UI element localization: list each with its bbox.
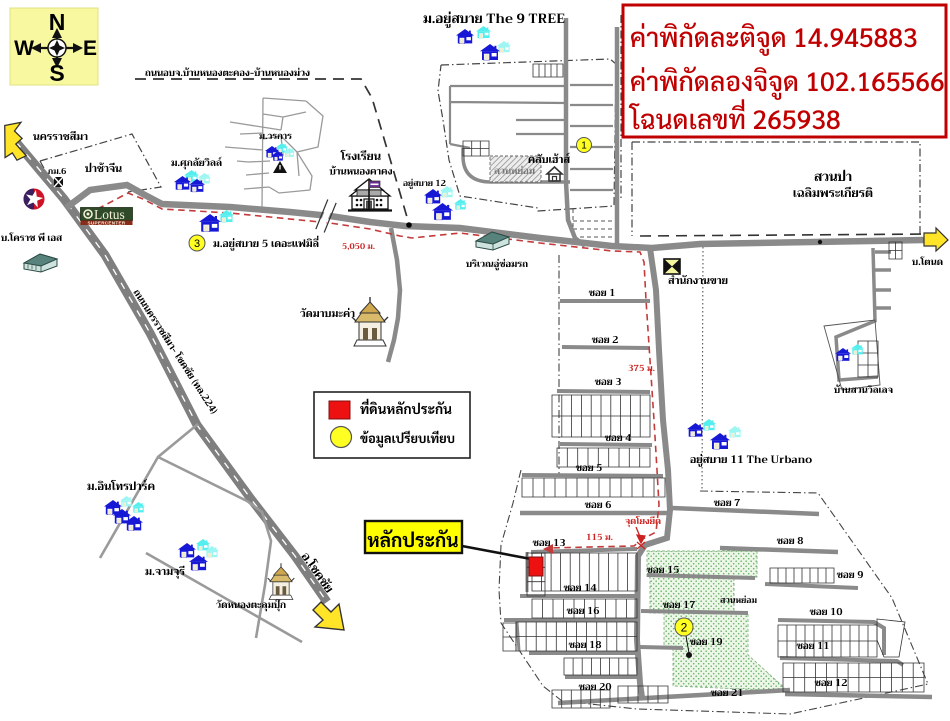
svg-text:2: 2 <box>681 620 688 634</box>
svg-text:N: N <box>49 9 66 35</box>
svg-text:3: 3 <box>194 238 200 250</box>
svg-text:S: S <box>49 60 64 86</box>
svg-text:E: E <box>83 37 97 60</box>
svg-text:W: W <box>14 37 34 60</box>
svg-text:1: 1 <box>581 141 587 152</box>
svg-text:SUPERCENTER: SUPERCENTER <box>87 221 125 226</box>
